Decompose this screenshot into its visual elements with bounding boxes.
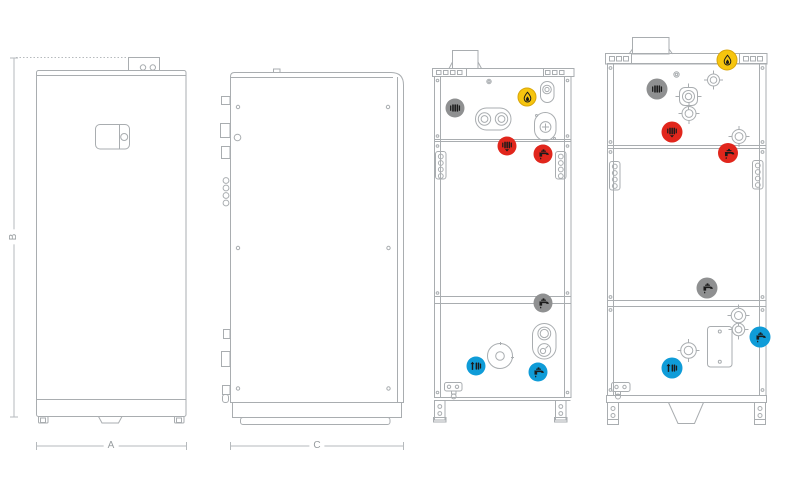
tap-icon: [754, 331, 767, 344]
drawing-stage: B A C: [0, 0, 790, 488]
radiator-icon: [449, 102, 462, 115]
rear_right-aux-heating-flow-marker: [647, 79, 668, 100]
radiator-up-icon: [666, 362, 679, 375]
radiator-down-icon: [501, 140, 514, 153]
tap-icon: [537, 297, 550, 310]
rear_left-hot-water-marker: [534, 145, 553, 164]
dimension-label-depth: C: [309, 440, 324, 452]
rear_left-recirculation-marker: [534, 294, 553, 313]
radiator-icon: [651, 83, 664, 96]
rear_right-heating-return-marker: [662, 358, 683, 379]
tap-icon: [701, 282, 714, 295]
flame-icon: [520, 90, 534, 104]
rear_left-aux-heating-flow-marker: [446, 99, 465, 118]
tap-icon: [722, 147, 735, 160]
rear_right-recirculation-marker: [697, 278, 718, 299]
tap-icon: [537, 148, 550, 161]
rear_right-gas-marker: [717, 50, 738, 71]
radiator-down-icon: [666, 126, 679, 139]
connection-markers-layer: [0, 0, 790, 488]
rear_left-heating-return-marker: [467, 357, 486, 376]
rear_left-gas-marker: [518, 88, 537, 107]
tap-icon: [532, 366, 545, 379]
flame-icon: [720, 53, 734, 67]
rear_right-heating-flow-marker: [662, 122, 683, 143]
dimension-label-width: A: [104, 440, 119, 452]
rear_right-cold-water-marker: [750, 327, 771, 348]
radiator-up-icon: [470, 360, 483, 373]
rear_right-hot-water-marker: [718, 143, 738, 163]
rear_left-cold-water-marker: [529, 363, 548, 382]
rear_left-heating-flow-marker: [498, 137, 517, 156]
dimension-label-height: B: [8, 230, 20, 245]
